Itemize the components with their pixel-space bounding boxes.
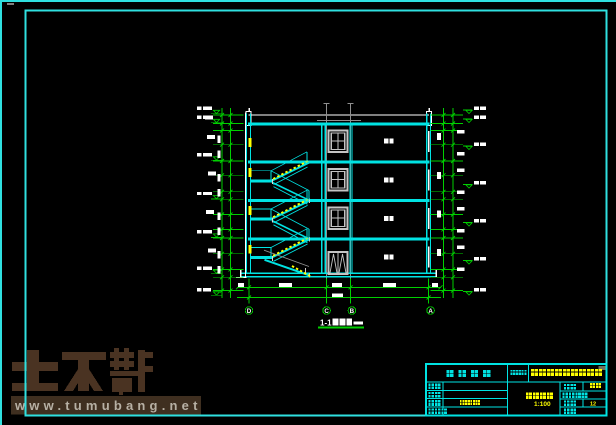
svg-text:1-1: 1-1 xyxy=(320,319,332,328)
svg-text:www.tumubang.net: www.tumubang.net xyxy=(14,398,202,413)
svg-text:C: C xyxy=(324,308,329,315)
svg-text:D: D xyxy=(247,308,252,315)
svg-text:1:100: 1:100 xyxy=(534,401,551,408)
svg-text:B: B xyxy=(350,308,355,315)
svg-text:A: A xyxy=(428,308,433,315)
svg-text:12: 12 xyxy=(590,402,596,408)
